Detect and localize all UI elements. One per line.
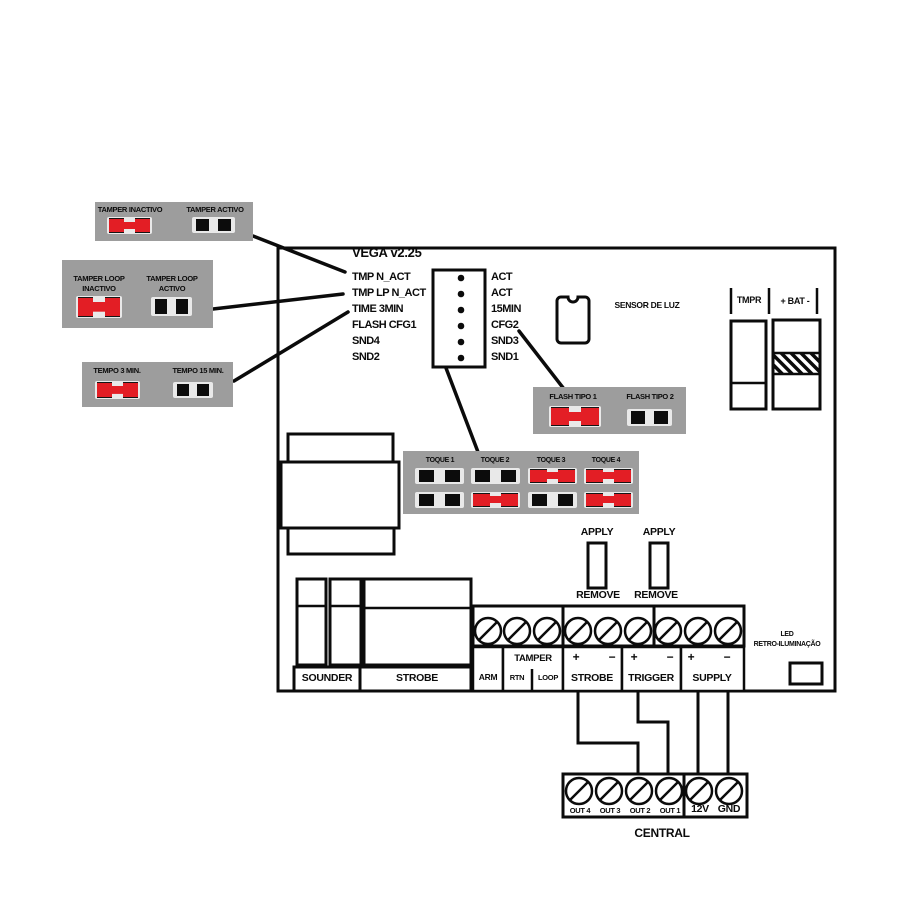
legend-tamper-loop-active-line2: ACTIVO [159, 285, 186, 293]
jumper-toque2-bottom [471, 492, 520, 508]
trigger-terminal-label: TRIGGER [628, 673, 674, 684]
pin-label-flash-cfg1: FLASH CFG1 [352, 320, 416, 331]
jumper-toque2-top [471, 468, 520, 484]
legend-tamper-inactive-label: TAMPER INACTIVO [98, 206, 163, 214]
arm-label: ARM [479, 673, 497, 682]
pin-label-act-2: ACT [491, 288, 512, 299]
screw-terminal-gnd [716, 778, 742, 804]
battery-label: + BAT - [781, 297, 810, 306]
remove-label-1: REMOVE [576, 590, 620, 601]
strobe-component [364, 579, 471, 665]
led-label-line2: RETRO-ILUMINAÇÃO [754, 641, 821, 648]
tmpr-connector [731, 321, 766, 409]
screw-terminal-out4 [566, 778, 592, 804]
out1-label: OUT 1 [660, 807, 681, 815]
screw-terminal-supply-minus [715, 618, 741, 644]
light-sensor-component [557, 297, 589, 343]
loop-label: LOOP [538, 674, 558, 682]
jumper-tamper-active [192, 217, 235, 233]
flash-tipo-1-label: FLASH TIPO 1 [549, 393, 596, 401]
screw-terminal-supply-plus [685, 618, 711, 644]
supply-plus-sign: + [688, 651, 695, 663]
screw-terminal-strobe-minus [595, 618, 621, 644]
battery-hatch-band [773, 353, 820, 374]
pin-label-15min: 15MIN [491, 304, 521, 315]
pin-label-snd2: SND2 [352, 352, 379, 363]
pin-dot [458, 291, 465, 298]
wire-trigger-plus-to-out1 [638, 691, 668, 775]
jumper-toque1-top [415, 468, 464, 484]
pin-label-snd1: SND1 [491, 352, 518, 363]
sounder-label: SOUNDER [302, 673, 352, 684]
strobe-component-label: STROBE [396, 673, 438, 684]
transformer-body [281, 462, 399, 528]
pin-label-snd4: SND4 [352, 336, 379, 347]
rtn-label: RTN [510, 674, 525, 682]
jumper-tamper-loop-active [151, 297, 192, 316]
legend-tempo-3min-label: TEMPO 3 MIN. [93, 367, 140, 375]
transformer-top [288, 434, 393, 463]
wiring-to-central [578, 691, 728, 775]
remove-label-2: REMOVE [634, 590, 678, 601]
transformer-component [281, 434, 399, 554]
tamper-terminal-label: TAMPER [514, 654, 552, 664]
pin-dot [458, 323, 465, 330]
toque-1-label: TOQUE 1 [426, 457, 455, 464]
legend-tamper-loop-active-line1: TAMPER LOOP [146, 275, 197, 283]
strobe-plus-sign: + [573, 651, 580, 663]
screw-terminal-out2 [626, 778, 652, 804]
legend-tamper-loop-inactive-line1: TAMPER LOOP [73, 275, 124, 283]
arm-label-box [473, 647, 503, 691]
apply-label-2: APPLY [643, 527, 676, 538]
central-label: CENTRAL [634, 827, 689, 839]
out4-label: OUT 4 [570, 807, 591, 815]
screw-terminal-tamper-rtn [504, 618, 530, 644]
pin-dot [458, 275, 465, 282]
12v-label: 12V [691, 804, 709, 815]
out3-label: OUT 3 [600, 807, 621, 815]
jumper-toque4-bottom [584, 492, 633, 508]
led-component [790, 663, 822, 684]
pin-label-act-1: ACT [491, 272, 512, 283]
screw-terminal-trigger-minus [655, 618, 681, 644]
apply-remove-slot-2 [650, 543, 668, 588]
out2-label: OUT 2 [630, 807, 651, 815]
toque-4-label: TOQUE 4 [592, 457, 621, 464]
pin-label-time-3min: TIME 3MIN [352, 304, 403, 315]
board-title: VEGA v2.25 [352, 246, 422, 259]
supply-minus-sign: − [724, 651, 731, 663]
legend-tempo-15min-label: TEMPO 15 MIN. [172, 367, 223, 375]
apply-remove-slot-1 [588, 543, 606, 588]
supply-terminal-label: SUPPLY [692, 673, 731, 684]
pin-dot [458, 307, 465, 314]
legend-tamper-active-label: TAMPER ACTIVO [186, 206, 243, 214]
pin-label-tmp-lp-nact: TMP LP N_ACT [352, 288, 426, 299]
screw-terminal-12v [686, 778, 712, 804]
toque-3-label: TOQUE 3 [537, 457, 566, 464]
jumper-tamper-loop-inactive [76, 296, 122, 318]
pin-label-tmp-nact: TMP N_ACT [352, 272, 410, 283]
diagram-canvas: TAMPER INACTIVO TAMPER ACTIVO TAMPER LOO… [0, 0, 900, 900]
strobe-terminal-label: STROBE [571, 673, 613, 684]
sounder-capacitor-1 [297, 579, 326, 665]
apply-label-1: APPLY [581, 527, 614, 538]
jumper-tamper-inactive [107, 217, 152, 234]
strobe-minus-sign: − [609, 651, 616, 663]
toque-2-label: TOQUE 2 [481, 457, 510, 464]
sounder-capacitor-2 [330, 579, 361, 665]
screw-terminal-arm [475, 618, 501, 644]
trigger-plus-sign: + [631, 651, 638, 663]
jumper-toque3-top [528, 468, 577, 484]
screw-terminal-out3 [596, 778, 622, 804]
diagram-shapes [0, 0, 900, 900]
jumper-toque1-bottom [415, 492, 464, 508]
jumper-pin-header [433, 270, 485, 367]
screw-terminal-strobe-plus [565, 618, 591, 644]
jumper-tempo-15min [173, 382, 213, 398]
trigger-minus-sign: − [667, 651, 674, 663]
transformer-bottom [288, 527, 394, 554]
pin-dot [458, 339, 465, 346]
gnd-label: GND [718, 804, 740, 815]
jumper-toque4-top [584, 468, 633, 484]
pin-dot [458, 355, 465, 362]
jumper-toque3-bottom [528, 492, 577, 508]
pin-header-box [433, 270, 485, 367]
jumper-tempo-3min [95, 381, 140, 399]
pin-label-cfg2: CFG2 [491, 320, 518, 331]
screw-terminal-trigger-plus [625, 618, 651, 644]
sensor-de-luz-label: SENSOR DE LUZ [614, 301, 679, 310]
legend-tamper-loop-inactive-line2: INACTIVO [82, 285, 115, 293]
flash-tipo-2-label: FLASH TIPO 2 [626, 393, 673, 401]
wire-strobe-plus-to-out2 [578, 691, 638, 775]
screw-terminal-out1 [656, 778, 682, 804]
jumper-flash-tipo-2 [627, 409, 672, 426]
pin-label-snd3: SND3 [491, 336, 518, 347]
led-label-line1: LED [780, 631, 793, 638]
jumper-flash-tipo-1 [549, 406, 601, 427]
screw-terminal-tamper-loop [534, 618, 560, 644]
tmpr-label: TMPR [737, 296, 761, 305]
